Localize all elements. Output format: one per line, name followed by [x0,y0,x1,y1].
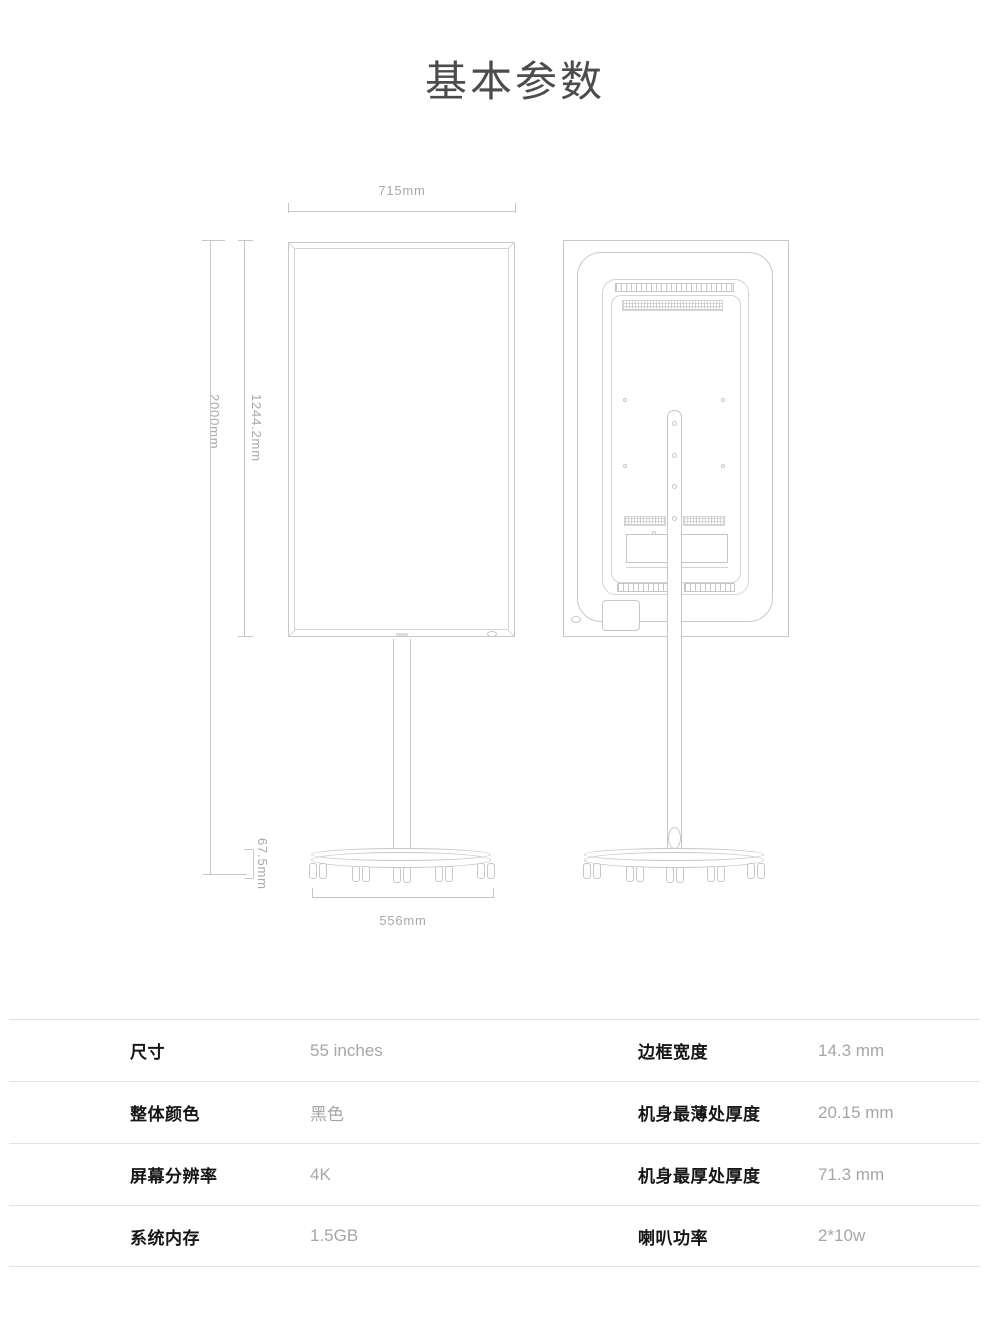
wheel [636,866,644,882]
spec-table: 尺寸 55 inches 边框宽度 14.3 mm 整体颜色 黑色 机身最薄处厚… [9,1019,980,1267]
wheel [757,863,765,879]
vesa-hole [721,464,725,468]
page-title: 基本参数 [215,48,815,109]
front-base-rim [311,852,491,868]
caster-wheels [477,863,495,879]
spec-label-memory: 系统内存 [130,1224,310,1249]
brand-logo-mark [396,633,408,636]
product-spec-page: { "page": { "title": "基本参数" }, "diagram"… [0,0,989,1317]
front-indicator-oval [487,631,497,637]
dimension-tick [238,240,253,241]
power-adapter-box [602,600,640,631]
caster-wheels [747,863,765,879]
spec-value-speaker-power: 2*10w [818,1226,980,1246]
spec-label-bezel-width: 边框宽度 [638,1038,818,1063]
caster-wheels [626,866,644,882]
table-row: 整体颜色 黑色 机身最薄处厚度 20.15 mm [9,1081,980,1143]
spec-value-min-thickness: 20.15 mm [818,1103,980,1123]
wheel [309,863,317,879]
dimension-tick [203,874,247,875]
caster-wheels [352,866,370,882]
caster-wheels [309,863,327,879]
spec-label-color: 整体颜色 [130,1100,310,1125]
spec-label-size: 尺寸 [130,1038,310,1063]
dimension-tick [288,203,289,213]
wheel [319,863,327,879]
spec-label-speaker-power: 喇叭功率 [638,1224,818,1249]
wheel [352,866,360,882]
wheel [477,863,485,879]
wheel [487,863,495,879]
wheel [717,866,725,882]
pole-hole [672,453,677,458]
back-foot-oval [571,616,581,623]
table-row: 屏幕分辨率 4K 机身最厚处厚度 71.3 mm [9,1143,980,1205]
dimension-tick [493,888,494,898]
wheel [362,866,370,882]
pole-hole [672,516,677,521]
spec-label-max-thickness: 机身最厚处厚度 [638,1162,818,1187]
spec-value-color: 黑色 [310,1100,638,1125]
wheel [747,863,755,879]
spec-value-max-thickness: 71.3 mm [818,1165,980,1185]
cable-routing-hole [668,827,681,849]
vesa-hole [623,464,627,468]
vent-grille-top [622,300,723,311]
caster-wheels [435,866,453,882]
wheel [676,867,684,883]
dimension-line-total-height [210,240,211,875]
vent-slots-bottom-left [617,583,668,592]
wheel [403,867,411,883]
dimension-line-screen-height [244,240,245,637]
vent-grille-bottom-right [683,516,725,526]
dimension-base-width: 556mm [312,913,494,928]
wheel [626,866,634,882]
caster-wheels [707,866,725,882]
table-row: 尺寸 55 inches 边框宽度 14.3 mm [9,1019,980,1081]
wheel [593,863,601,879]
dimension-tick [312,888,313,898]
vent-grille-bottom-left [624,516,666,526]
table-row: 系统内存 1.5GB 喇叭功率 2*10w [9,1205,980,1267]
spec-value-memory: 1.5GB [310,1226,638,1246]
dimension-top-width: 715mm [288,183,516,198]
vent-slots-bottom-right [684,583,735,592]
front-stand-pole [393,639,411,852]
spec-value-bezel-width: 14.3 mm [818,1041,980,1061]
back-base-rim [584,852,764,868]
wheel [393,867,401,883]
vent-slots-top [615,283,734,292]
pole-hole [672,484,677,489]
back-stand-pole [667,410,682,852]
caster-wheels [666,867,684,883]
dimension-tick [238,636,253,637]
wheel [435,866,443,882]
spec-value-resolution: 4K [310,1165,638,1185]
wheel [707,866,715,882]
caster-wheels [393,867,411,883]
dimension-tick [202,240,225,241]
dimension-screen-height: 1244.2mm [249,394,264,462]
dimension-tick [515,203,516,213]
dimension-base-height: 67.5mm [255,838,270,890]
vesa-hole [721,398,725,402]
dimension-tick [244,878,254,879]
dimension-line-top-width [288,211,516,212]
wheel [666,867,674,883]
dimension-line-base-width [312,897,494,898]
spec-label-min-thickness: 机身最薄处厚度 [638,1100,818,1125]
dimension-line-base-height [253,849,254,879]
pole-hole [672,421,677,426]
spec-value-size: 55 inches [310,1041,638,1061]
vesa-hole [623,398,627,402]
front-view-screen-inner [294,248,509,630]
spec-label-resolution: 屏幕分辨率 [130,1162,310,1187]
dimension-tick [244,849,254,850]
wheel [583,863,591,879]
wheel [445,866,453,882]
caster-wheels [583,863,601,879]
